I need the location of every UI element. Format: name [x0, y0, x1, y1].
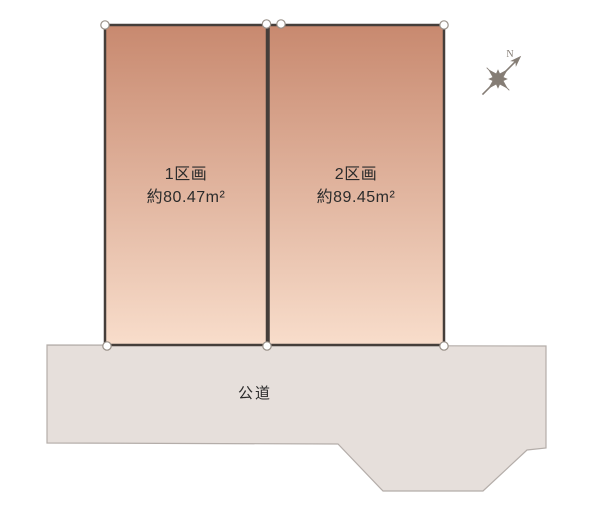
- plot-2-area: 約89.45m²: [268, 186, 444, 209]
- boundary-marker: [262, 20, 270, 28]
- boundary-marker: [263, 342, 271, 350]
- road-area: [47, 345, 546, 491]
- plot-1-area: 約80.47m²: [105, 186, 267, 209]
- compass-icon: N: [471, 45, 532, 106]
- plot-2-name: 2区画: [268, 163, 444, 186]
- plot-map-drawing: N: [0, 0, 600, 506]
- plot-map-canvas: N 1区画 約80.47m² 2区画 約89.45m² 公道: [0, 0, 600, 506]
- boundary-marker: [103, 342, 111, 350]
- plot-1-name: 1区画: [105, 163, 267, 186]
- boundary-marker: [440, 342, 448, 350]
- road-label: 公道: [238, 382, 272, 403]
- plot-2-label: 2区画 約89.45m²: [268, 163, 444, 209]
- boundary-marker: [101, 21, 109, 29]
- compass-north-label: N: [506, 49, 513, 60]
- plot-1-label: 1区画 約80.47m²: [105, 163, 267, 209]
- boundary-marker: [440, 21, 448, 29]
- boundary-marker: [277, 20, 285, 28]
